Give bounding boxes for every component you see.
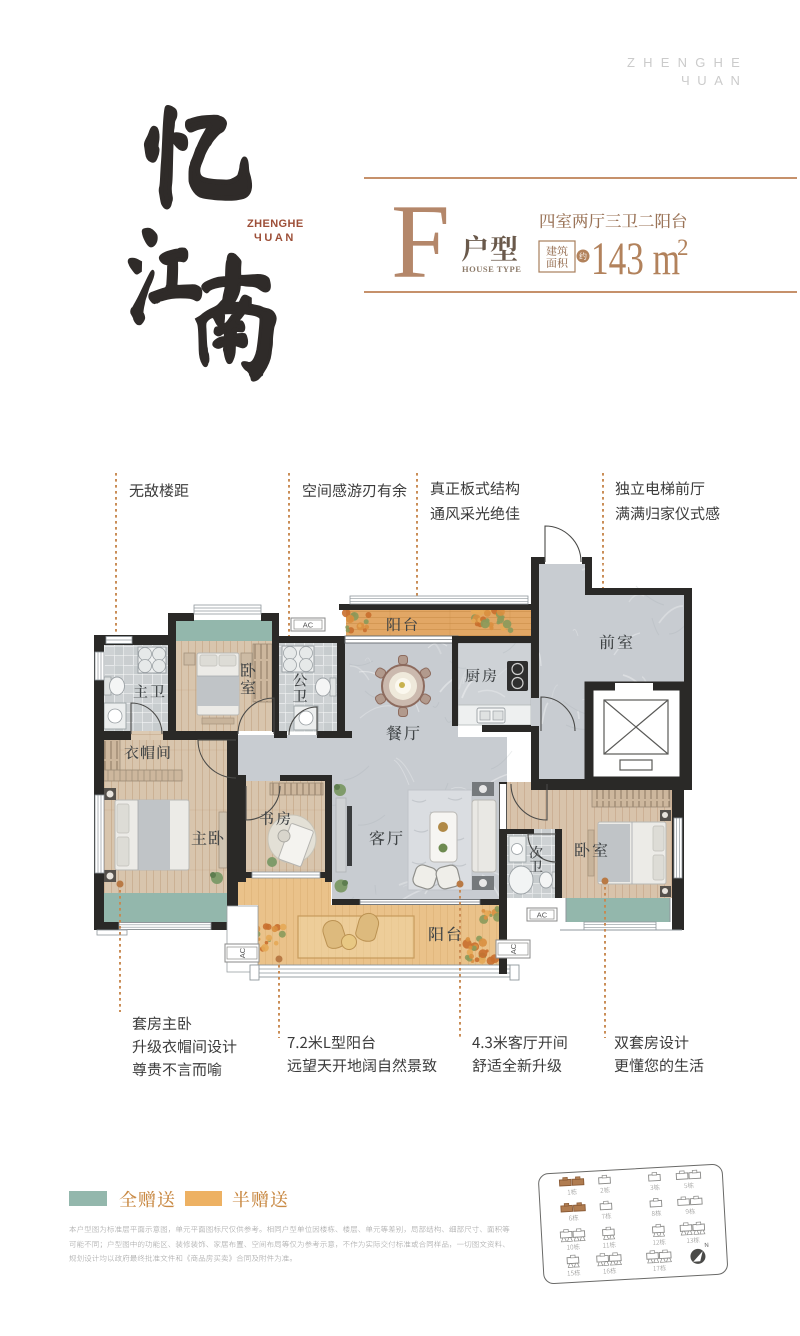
svg-text:AC: AC (509, 943, 518, 954)
svg-text:ZHENGHE: ZHENGHE (627, 55, 748, 70)
svg-text:N: N (704, 1243, 709, 1249)
svg-text:AC: AC (537, 910, 548, 919)
svg-text:ЧUAN: ЧUAN (681, 73, 748, 88)
svg-text:ZHENGHE: ZHENGHE (247, 218, 304, 230)
svg-text:HOUSE TYPE: HOUSE TYPE (462, 264, 521, 274)
svg-text:AC: AC (303, 620, 314, 629)
svg-text:143 m: 143 m (591, 232, 680, 284)
svg-text:F: F (391, 183, 450, 300)
svg-text:AC: AC (238, 947, 247, 958)
svg-text:2: 2 (677, 235, 689, 260)
svg-text:ЧUAN: ЧUAN (254, 232, 296, 244)
